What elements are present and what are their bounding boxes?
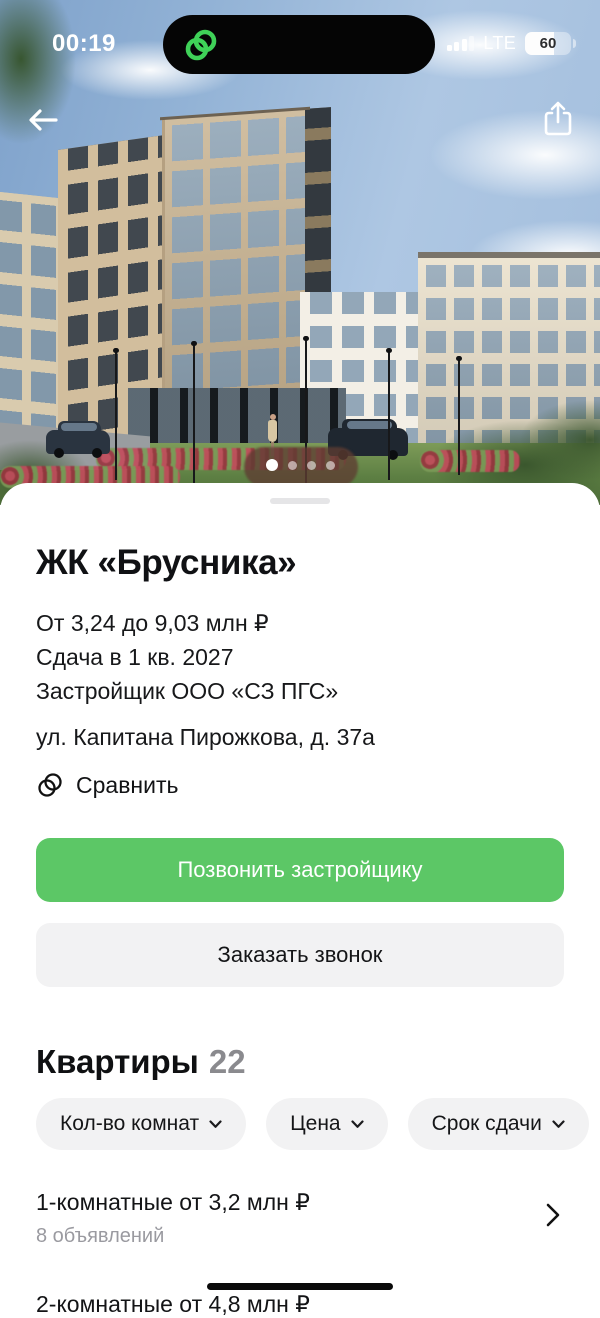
lamp-post (458, 360, 460, 475)
back-button[interactable] (26, 104, 60, 136)
clock: 00:19 (52, 30, 116, 58)
listing-details: От 3,24 до 9,03 млн ₽ Сдача в 1 кв. 2027… (36, 606, 338, 708)
filter-rooms[interactable]: Кол-во комнат (36, 1098, 246, 1150)
item-subtitle: 8 объявлений (36, 1225, 564, 1248)
home-indicator (207, 1283, 393, 1290)
apartment-group-1-room[interactable]: 1-комнатные от 3,2 млн ₽ 8 объявлений (36, 1189, 564, 1248)
chevron-down-icon (552, 1120, 565, 1129)
item-title: 1-комнатные от 3,2 млн ₽ (36, 1189, 564, 1216)
storefront (128, 388, 346, 448)
filter-label: Кол-во комнат (60, 1112, 199, 1136)
filter-label: Срок сдачи (432, 1112, 542, 1136)
cloud (430, 110, 600, 200)
compare-label: Сравнить (76, 772, 178, 799)
filter-label: Цена (290, 1112, 341, 1136)
address: ул. Капитана Пирожкова, д. 37а (36, 724, 375, 751)
network-type-label: LTE (483, 33, 516, 54)
back-arrow-icon (26, 104, 60, 136)
carousel-dot-active (266, 459, 278, 471)
request-call-button[interactable]: Заказать звонок (36, 923, 564, 987)
compare-icon (36, 771, 64, 799)
roofline (418, 252, 600, 258)
call-developer-button[interactable]: Позвонить застройщику (36, 838, 564, 902)
filter-price[interactable]: Цена (266, 1098, 388, 1150)
dynamic-island[interactable] (163, 15, 435, 74)
carousel-dot (326, 461, 335, 470)
chevron-down-icon (351, 1120, 364, 1129)
filter-chips-row: Кол-во комнат Цена Срок сдачи Площадь (36, 1098, 600, 1150)
2gis-link-logo-icon (181, 25, 221, 65)
chevron-right-icon (546, 1203, 560, 1227)
item-title: 2-комнатные от 4,8 млн ₽ (36, 1291, 564, 1318)
apartment-group-2-room[interactable]: 2-комнатные от 4,8 млн ₽ (36, 1291, 564, 1318)
battery-icon: 60 (525, 32, 571, 55)
battery-percent: 60 (525, 32, 571, 55)
battery-cap (573, 39, 576, 48)
carousel-dot (288, 461, 297, 470)
carousel-dots[interactable] (0, 459, 600, 471)
price-range: От 3,24 до 9,03 млн ₽ (36, 606, 338, 640)
listing-title: ЖК «Брусника» (36, 543, 296, 583)
developer: Застройщик ООО «СЗ ПГС» (36, 674, 338, 708)
signal-strength-icon (447, 36, 475, 51)
status-bar: 00:19 LTE 60 (0, 0, 600, 88)
car-left (46, 430, 110, 454)
listing-sheet: ЖК «Брусника» От 3,24 до 9,03 млн ₽ Сдач… (0, 483, 600, 1300)
completion-date: Сдача в 1 кв. 2027 (36, 640, 338, 674)
sheet-drag-handle[interactable] (270, 498, 330, 504)
apartments-title: Квартиры (36, 1043, 199, 1080)
filter-completion[interactable]: Срок сдачи (408, 1098, 589, 1150)
share-button[interactable] (542, 100, 574, 138)
carousel-dot (307, 461, 316, 470)
ios-share-icon (542, 100, 574, 138)
compare-button[interactable]: Сравнить (36, 771, 178, 799)
chevron-down-icon (209, 1120, 222, 1129)
apartments-count: 22 (209, 1043, 246, 1080)
apartments-section-header: Квартиры22 (36, 1043, 246, 1081)
